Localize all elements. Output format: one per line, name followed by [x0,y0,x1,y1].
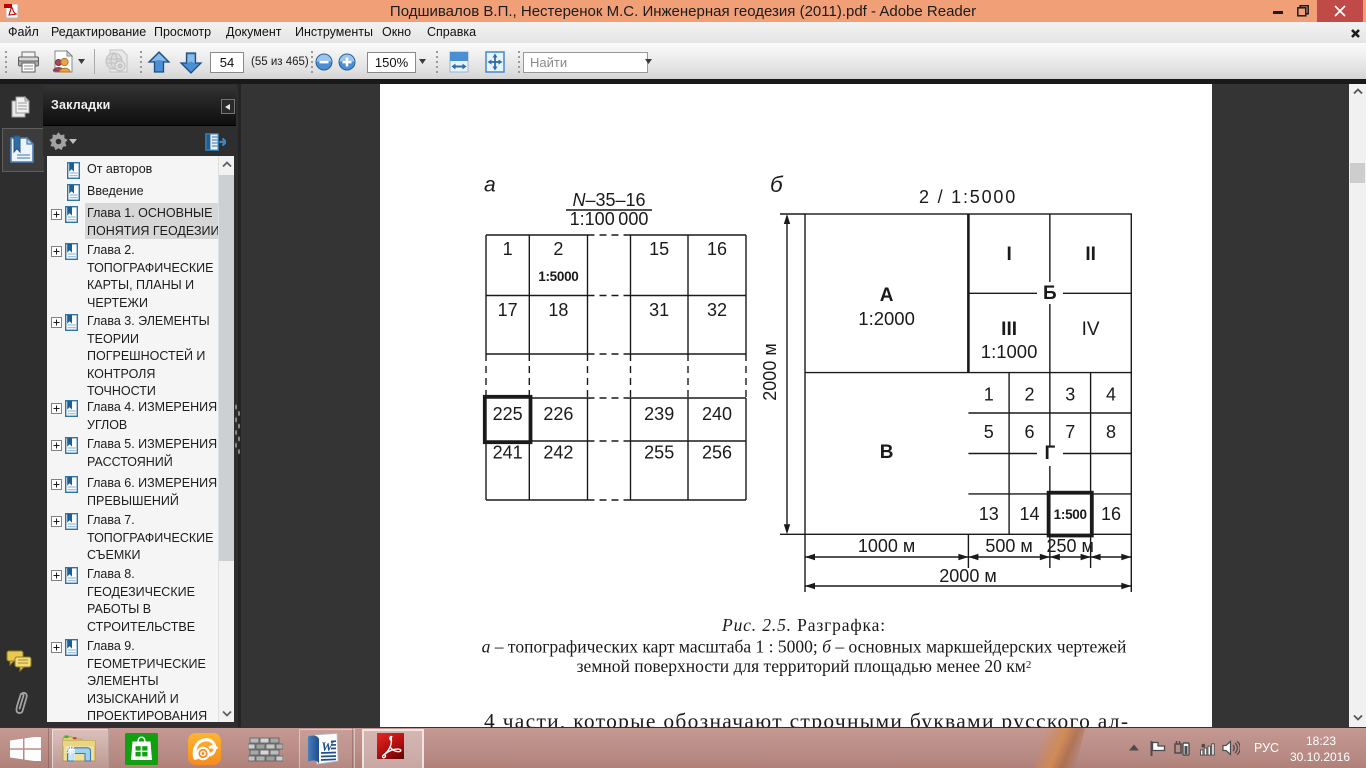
svg-text:16: 16 [1101,504,1121,524]
svg-text:I: I [1006,244,1011,265]
svg-text:земной поверхности для террито: земной поверхности для территорий площад… [577,656,1032,676]
svg-text:7: 7 [1065,422,1075,442]
svg-text:2: 2 [1024,385,1034,405]
svg-text:II: II [1085,244,1096,265]
svg-text:a: a [484,174,496,197]
svg-text:31: 31 [649,300,669,320]
svg-text:А: А [880,285,894,306]
svg-text:2: 2 [553,239,563,259]
svg-text:1000 м: 1000 м [858,536,915,556]
svg-text:4: 4 [1106,385,1116,405]
svg-text:1:500: 1:500 [1054,507,1087,522]
svg-text:18: 18 [548,300,568,320]
svg-text:1: 1 [503,239,513,259]
svg-text:б: б [770,172,784,197]
svg-text:4 части, которые обозначают ст: 4 части, которые обозначают строчными бу… [484,709,1128,727]
svg-text:17: 17 [498,300,518,320]
svg-text:226: 226 [543,404,573,424]
svg-text:В: В [880,442,894,463]
svg-text:6: 6 [1024,422,1034,442]
svg-text:N–35–16: N–35–16 [572,190,645,210]
svg-text:а – топографических карт масшт: а – топографических карт масштаба 1 : 50… [482,637,1127,657]
svg-text:Б: Б [1043,283,1057,304]
svg-text:225: 225 [493,404,523,424]
svg-text:1:5000: 1:5000 [538,269,578,284]
svg-text:2000 м: 2000 м [939,566,996,586]
svg-text:Рис. 2.5. Разграфка:: Рис. 2.5. Разграфка: [721,615,886,635]
svg-text:500 м: 500 м [985,536,1032,556]
svg-text:1: 1 [984,385,994,405]
svg-text:239: 239 [644,404,674,424]
svg-text:IV: IV [1082,319,1100,340]
svg-text:3: 3 [1065,385,1075,405]
svg-text:16: 16 [707,239,727,259]
svg-text:242: 242 [543,443,573,463]
svg-text:Г: Г [1044,443,1055,464]
svg-text:241: 241 [493,443,523,463]
svg-text:2 / 1:5000: 2 / 1:5000 [919,187,1017,207]
svg-text:13: 13 [979,504,999,524]
svg-text:240: 240 [702,404,732,424]
svg-text:2000 м: 2000 м [760,343,780,400]
svg-text:32: 32 [707,300,727,320]
svg-text:255: 255 [644,443,674,463]
svg-text:250 м: 250 м [1046,536,1093,556]
svg-text:III: III [1001,319,1017,340]
svg-text:1:2000: 1:2000 [858,308,915,329]
svg-text:5: 5 [984,422,994,442]
svg-text:1:100 000: 1:100 000 [570,209,649,229]
svg-text:14: 14 [1019,504,1039,524]
svg-text:8: 8 [1106,422,1116,442]
svg-text:1:1000: 1:1000 [981,341,1038,362]
svg-text:256: 256 [702,443,732,463]
svg-text:15: 15 [649,239,669,259]
